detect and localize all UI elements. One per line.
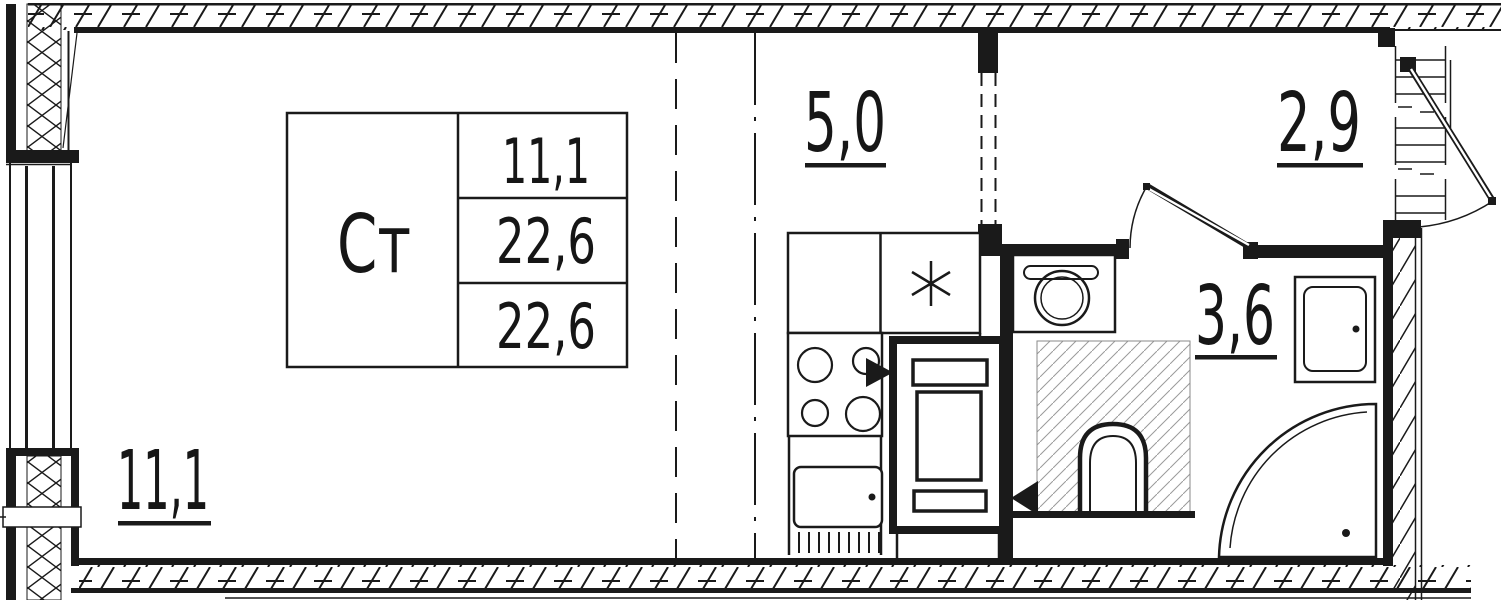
left-wall-outer-top xyxy=(6,4,16,163)
shower-drain-dot xyxy=(1342,529,1350,537)
vent-shaft xyxy=(893,340,1003,558)
right-wall-inner-face xyxy=(1383,220,1393,566)
table-area-row-3: 22,6 xyxy=(496,290,596,363)
table-area-row-2: 22,6 xyxy=(496,205,596,278)
kitchen-counter xyxy=(788,233,980,333)
bathroom-wall-top-right xyxy=(1247,245,1384,258)
table-area-row-1: 11,1 xyxy=(502,125,590,198)
left-wall-insulation-bottom xyxy=(27,456,61,600)
top-wall-hatch xyxy=(28,4,1501,30)
window-sill-bar xyxy=(6,448,79,456)
floor-plan: Ст 11,1 22,6 22,6 11,1 5,0 2,9 3,6 xyxy=(0,0,1501,600)
bottom-wall-inner-face xyxy=(71,558,1390,565)
left-wall-outer-bottom xyxy=(6,456,16,600)
room-label-hallway: 2,9 xyxy=(1277,76,1361,171)
jamb-break-2 xyxy=(1388,165,1452,179)
room-label-living-underline xyxy=(118,521,211,526)
left-wall-insulation-top xyxy=(27,4,61,152)
room-label-bathroom: 3,6 xyxy=(1195,269,1275,364)
left-wall-cap xyxy=(6,150,79,163)
top-wall-thin-edge xyxy=(1390,29,1501,31)
washer-box xyxy=(1295,277,1375,382)
washer-dot xyxy=(1353,326,1360,333)
right-wall-top-stub xyxy=(1378,28,1395,47)
appliance-handle-dot xyxy=(869,494,876,501)
right-wall-hatch xyxy=(1393,238,1415,600)
room-label-kitchen: 5,0 xyxy=(804,76,886,171)
partition-stub-top xyxy=(978,32,998,73)
unit-type-label: Ст xyxy=(337,198,411,291)
bottom-wall-outer-line xyxy=(71,588,1471,593)
room-label-kitchen-underline xyxy=(805,163,886,168)
left-wall-break-box xyxy=(3,507,81,527)
room-label-bathroom-underline xyxy=(1195,355,1277,360)
bathroom-doorjamb-left xyxy=(1116,239,1129,259)
room-label-living: 11,1 xyxy=(117,434,209,529)
top-wall-outer-line xyxy=(28,3,1501,6)
exterior-wall-top xyxy=(28,3,1501,33)
top-wall-inner-face xyxy=(74,27,1390,33)
plumbing-ledge-line xyxy=(1013,511,1195,518)
exterior-wall-bottom xyxy=(71,558,1471,598)
floor-plan-drawing: Ст 11,1 22,6 22,6 11,1 5,0 2,9 3,6 xyxy=(0,0,1501,600)
title-block-table: Ст 11,1 22,6 22,6 xyxy=(287,113,627,367)
room-label-hallway-underline xyxy=(1277,163,1363,168)
bottom-wall-hatch xyxy=(79,565,1471,588)
